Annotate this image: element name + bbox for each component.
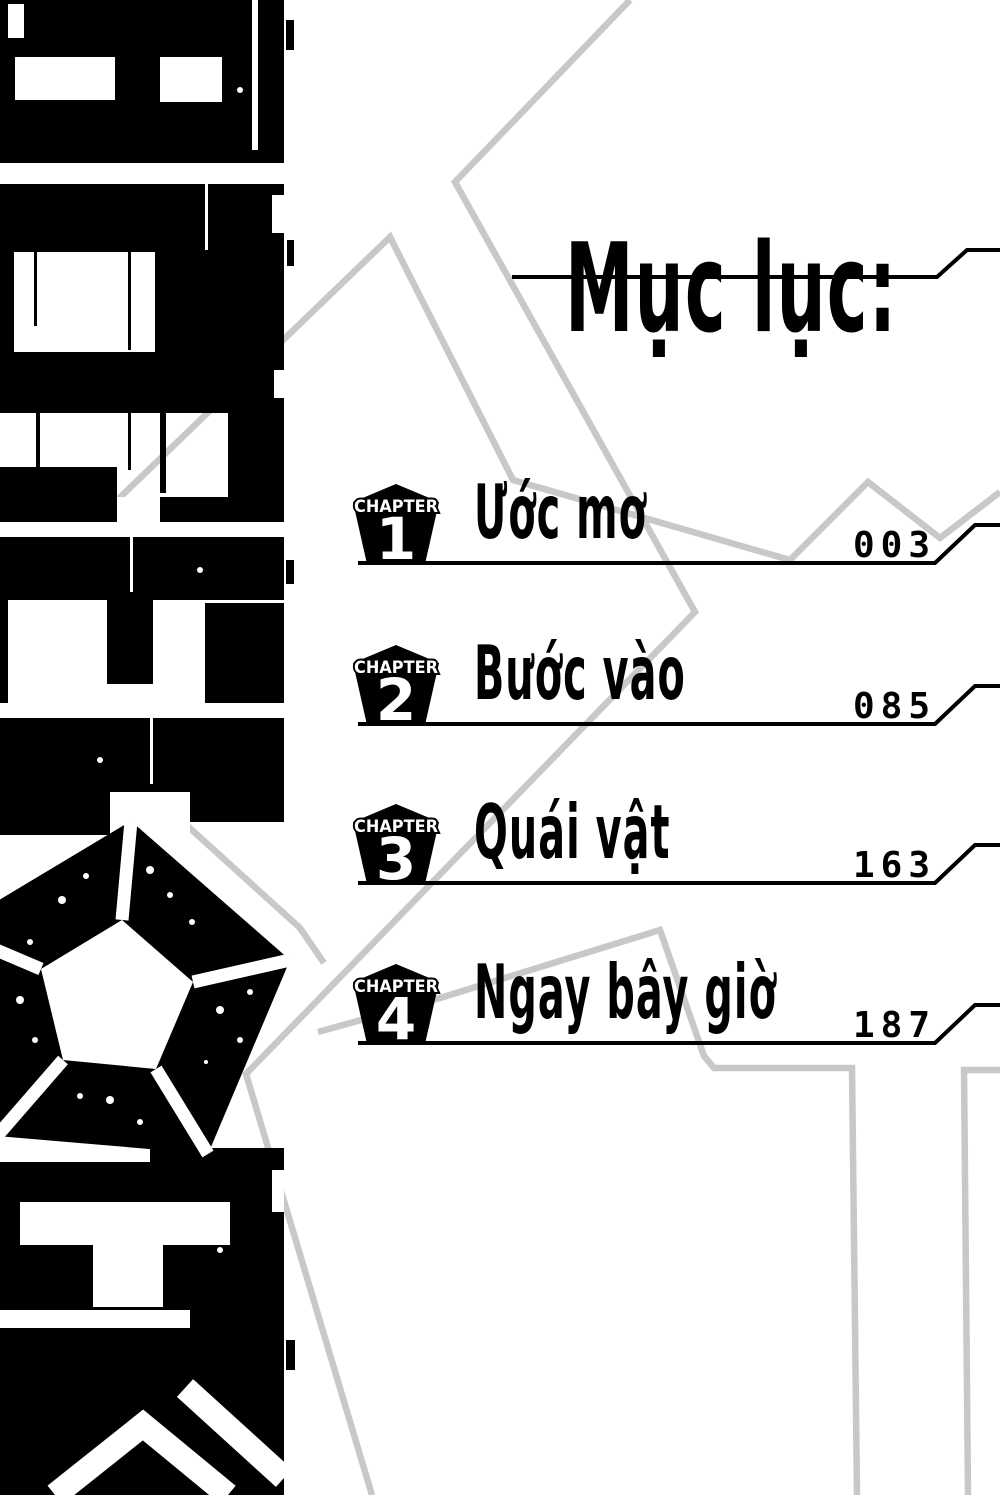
chapter-title: Bước vào xyxy=(474,636,686,711)
chapter-title: Quái vật xyxy=(474,795,671,870)
chapter-page-number: 187 xyxy=(853,1008,936,1044)
toc-page: Mục lục: CHAPTER 1 Ước mơ 003 CHAPTER 2 … xyxy=(0,0,1000,1495)
chapter-title: Ước mơ xyxy=(474,475,647,550)
chapter-badge: CHAPTER 3 xyxy=(350,802,442,888)
chapter-page-number: 085 xyxy=(853,689,936,725)
chapter-badge-number: 3 xyxy=(376,825,416,893)
chapter-badge-number: 2 xyxy=(376,666,416,734)
chapter-page-number: 163 xyxy=(853,848,936,884)
chapter-badge-number: 4 xyxy=(376,985,416,1053)
chapter-badge: CHAPTER 4 xyxy=(350,962,442,1048)
chapter-badge: CHAPTER 2 xyxy=(350,643,442,729)
chapter-title: Ngay bây giờ xyxy=(474,955,777,1030)
chapter-page-number: 003 xyxy=(853,528,936,564)
chapter-badge: CHAPTER 1 xyxy=(350,482,442,568)
page-title: Mục lục: xyxy=(565,228,897,351)
chapter-badge-number: 1 xyxy=(376,505,416,573)
